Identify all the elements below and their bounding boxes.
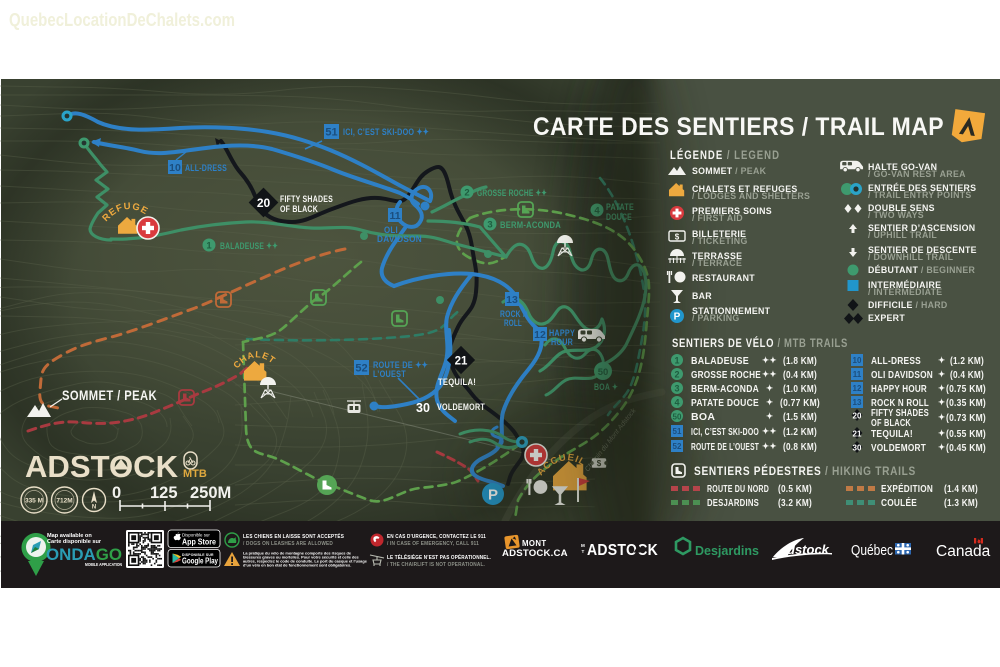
svg-text:21: 21 [853,430,862,439]
svg-text:125: 125 [150,484,178,502]
svg-text:2: 2 [674,370,679,380]
svg-text:(1.4 KM): (1.4 KM) [944,483,978,495]
svg-text:BALADEUSE: BALADEUSE [691,355,749,367]
svg-text:(0.45 KM): (0.45 KM) [946,442,986,454]
svg-text:ROLL: ROLL [504,318,522,328]
svg-text:13: 13 [853,398,862,407]
svg-text:1: 1 [206,241,212,252]
svg-text:SOMMET / PEAK: SOMMET / PEAK [62,387,157,403]
svg-text:/ TRAIL ENTRY POINTS: / TRAIL ENTRY POINTS [868,190,972,200]
svg-text:✦✦: ✦✦ [762,441,777,451]
svg-text:(0.35 KM): (0.35 KM) [946,397,986,409]
svg-text:11: 11 [389,210,400,222]
svg-text:ROUTE DU NORD: ROUTE DU NORD [707,483,769,495]
svg-text:BERM-ACONDA: BERM-ACONDA [500,220,561,231]
svg-text:(0.75 KM): (0.75 KM) [946,383,986,395]
svg-text:BOA: BOA [691,411,715,423]
svg-text:SENTIERS DE VÉLO / MTB TRAILS: SENTIERS DE VÉLO / MTB TRAILS [672,337,848,350]
svg-text:(1.0 KM): (1.0 KM) [783,383,817,395]
svg-text:4: 4 [674,398,679,408]
svg-text:335 M: 335 M [25,498,43,505]
svg-text:L’OUEST: L’OUEST [373,369,406,379]
svg-text:Canada: Canada [936,543,991,560]
svg-text:OF BLACK: OF BLACK [280,204,318,215]
svg-text:51: 51 [673,427,682,436]
svg-text:EXPERT: EXPERT [868,313,905,323]
svg-text:✦✦: ✦✦ [762,355,777,365]
svg-text:ADSTOCK: ADSTOCK [587,542,658,559]
svg-text:(0.4 KM): (0.4 KM) [950,369,984,381]
svg-text:(0.77 KM): (0.77 KM) [780,397,820,409]
svg-text:0: 0 [112,484,121,502]
svg-text:✦: ✦ [938,355,946,365]
svg-text:QuebecLocationDeChalets.com: QuebecLocationDeChalets.com [9,10,235,30]
svg-text:3: 3 [674,384,679,394]
svg-text:Google Play: Google Play [182,557,218,566]
svg-text:TEQUILA!: TEQUILA! [438,377,476,388]
svg-text:✦: ✦ [938,397,946,407]
svg-text:✦: ✦ [766,411,774,421]
svg-text:BALADEUSE ✦✦: BALADEUSE ✦✦ [220,241,278,252]
svg-text:✦: ✦ [938,412,946,422]
svg-text:(0.8 KM): (0.8 KM) [783,441,817,453]
svg-text:(1.3 KM): (1.3 KM) [944,497,978,509]
svg-text:ICI, C’EST SKI-DOO ✦✦: ICI, C’EST SKI-DOO ✦✦ [343,127,429,138]
svg-text:/ IN CASE OF EMERGENCY, CALL 9: / IN CASE OF EMERGENCY, CALL 911 [387,541,479,547]
svg-text:GROSSE ROCHE: GROSSE ROCHE [691,369,761,381]
svg-text:ADSTOCK: ADSTOCK [25,449,179,484]
svg-text:3: 3 [487,220,492,231]
svg-text:/ TWO WAYS: / TWO WAYS [868,210,924,220]
svg-text:/ TERRACE: / TERRACE [692,258,742,268]
svg-text:BAR: BAR [692,291,712,301]
svg-text:LÉGENDE / LEGEND: LÉGENDE / LEGEND [670,149,780,162]
svg-text:/ THE CHAIRLIFT IS NOT OPERATI: / THE CHAIRLIFT IS NOT OPERATIONAL. [387,562,485,568]
svg-text:(1.8 KM): (1.8 KM) [783,355,817,367]
svg-text:(0.5 KM): (0.5 KM) [778,483,812,495]
svg-text:d’un vélo en bon état de fonct: d’un vélo en bon état de fonctionnement … [243,563,351,568]
svg-text:30: 30 [416,401,430,415]
svg-text:App Store: App Store [182,538,216,547]
svg-text:✦: ✦ [766,383,774,393]
svg-text:LES CHIENS EN LAISSE SONT ACCE: LES CHIENS EN LAISSE SONT ACCEPTÉS [243,532,344,540]
svg-text:$: $ [675,233,680,242]
svg-text:/ INTERMEDIATE: / INTERMEDIATE [868,287,942,297]
svg-text:RESTAURANT: RESTAURANT [692,273,755,283]
svg-text:✦: ✦ [938,383,946,393]
svg-text:M: M [581,543,585,548]
svg-text:(3.2 KM): (3.2 KM) [778,497,812,509]
svg-text:COULÉE: COULÉE [881,496,917,509]
svg-text:P: P [674,312,681,323]
svg-text:11: 11 [853,370,862,379]
svg-text:OLI DAVIDSON: OLI DAVIDSON [871,369,933,381]
svg-text:DÉBUTANT / BEGINNER: DÉBUTANT / BEGINNER [868,265,976,275]
svg-text:T: T [582,549,585,554]
svg-text:CARTE DES SENTIERS / TRAIL MA: CARTE DES SENTIERS / TRAIL MAP [533,113,944,141]
svg-text:12: 12 [853,384,862,393]
svg-text:BERM-ACONDA: BERM-ACONDA [691,383,759,395]
svg-text:30: 30 [853,444,862,453]
svg-text:✦: ✦ [766,397,774,407]
svg-text:Québec: Québec [851,543,893,559]
svg-text:51: 51 [325,127,337,139]
svg-text:DAVIDSON: DAVIDSON [377,234,422,244]
svg-text:(1.5 KM): (1.5 KM) [783,411,817,423]
svg-text:MTB: MTB [183,468,207,480]
svg-text:SOMMET / PEAK: SOMMET / PEAK [692,166,767,176]
svg-text:20: 20 [257,196,271,210]
svg-text:VOLDEMORT: VOLDEMORT [437,402,485,413]
svg-text:LE TÉLÉSIÈGE N’EST PAS OPÉRATI: LE TÉLÉSIÈGE N’EST PAS OPÉRATIONNEL. [387,553,491,561]
svg-text:✦✦: ✦✦ [762,369,777,379]
svg-text:(0.73 KM): (0.73 KM) [946,412,986,424]
svg-text:712M: 712M [56,498,72,505]
svg-text:/ LODGES AND SHELTERS: / LODGES AND SHELTERS [692,191,810,201]
svg-text:21: 21 [455,356,468,368]
svg-text:ALL-DRESS: ALL-DRESS [871,355,921,367]
svg-text:/ DOWNHILL TRAIL: / DOWNHILL TRAIL [868,252,954,262]
svg-text:ADSTOCK.CA: ADSTOCK.CA [502,548,568,559]
svg-text:ROUTE DE L’OUEST: ROUTE DE L’OUEST [691,441,759,453]
svg-text:✦: ✦ [938,369,946,379]
svg-text:HOUR: HOUR [551,337,573,347]
svg-text:250M: 250M [190,484,231,502]
svg-text:(1.2 KM): (1.2 KM) [950,355,984,367]
svg-text:MOBILE APPLICATION: MOBILE APPLICATION [85,562,122,567]
svg-text:PATATE DOUCE: PATATE DOUCE [691,397,759,409]
svg-text:2: 2 [464,188,469,199]
svg-text:EXPÉDITION: EXPÉDITION [881,482,933,495]
svg-text:13: 13 [506,294,518,306]
svg-text:✦: ✦ [938,428,946,438]
svg-text:20: 20 [853,412,862,421]
svg-text:DESJARDINS: DESJARDINS [707,497,759,509]
svg-text:✦✦: ✦✦ [762,426,777,436]
svg-text:/ UPHILL TRAIL: / UPHILL TRAIL [868,230,937,240]
svg-text:GROSSE ROCHE ✦✦: GROSSE ROCHE ✦✦ [477,188,547,199]
svg-text:52: 52 [355,363,367,375]
svg-text:ALL-DRESS: ALL-DRESS [185,163,227,174]
svg-text:(0.4 KM): (0.4 KM) [783,369,817,381]
svg-text:/ FIRST AID: / FIRST AID [692,213,743,223]
svg-text:DIFFICILE / HARD: DIFFICILE / HARD [868,300,948,310]
svg-text:1: 1 [674,356,679,366]
svg-text:VOLDEMORT: VOLDEMORT [871,442,926,454]
svg-text:12: 12 [534,329,546,341]
svg-text:HAPPY HOUR: HAPPY HOUR [871,383,927,395]
svg-text:/ PARKING: / PARKING [692,313,740,323]
svg-text:TEQUILA!: TEQUILA! [871,428,913,440]
svg-text:✦: ✦ [938,442,946,452]
svg-text:/ DOGS ON LEASHES ARE ALLOWED: / DOGS ON LEASHES ARE ALLOWED [243,541,333,547]
svg-text:50: 50 [673,413,682,422]
svg-text:ICI, C’EST SKI-DOO: ICI, C’EST SKI-DOO [691,426,759,438]
svg-text:SENTIERS PÉDESTRES / HIKING TR: SENTIERS PÉDESTRES / HIKING TRAILS [694,465,916,478]
svg-text:10: 10 [169,162,181,174]
svg-text:(1.2 KM): (1.2 KM) [783,426,817,438]
svg-text:dstock: dstock [787,542,830,557]
svg-text:/ TICKETING: / TICKETING [692,236,748,246]
svg-text:10: 10 [853,356,862,365]
svg-text:52: 52 [673,442,682,451]
svg-text:Desjardins: Desjardins [695,544,759,558]
svg-text:N: N [92,505,96,511]
svg-text:MONT: MONT [522,539,547,548]
svg-text:(0.55 KM): (0.55 KM) [946,428,986,440]
svg-text:/ GO-VAN REST AREA: / GO-VAN REST AREA [868,169,966,179]
svg-text:EN CAS D’URGENCE, CONTACTEZ LE: EN CAS D’URGENCE, CONTACTEZ LE 911 [387,534,486,540]
